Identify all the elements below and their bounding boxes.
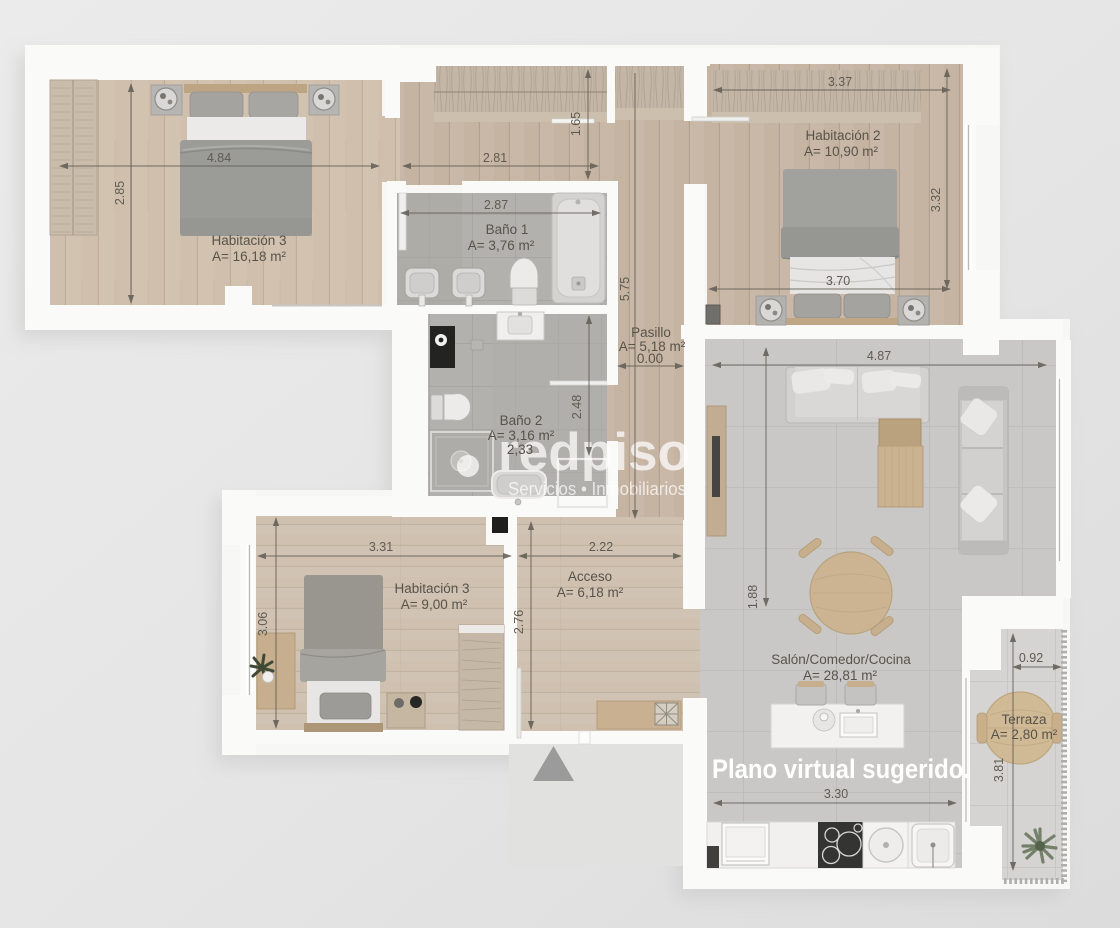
svg-text:A= 28,81 m²: A= 28,81 m² (803, 668, 877, 683)
svg-text:A= 3,76 m²: A= 3,76 m² (468, 238, 535, 253)
svg-text:1.88: 1.88 (746, 585, 760, 609)
svg-text:Habitación 3: Habitación 3 (211, 233, 286, 248)
svg-text:2.81: 2.81 (483, 151, 507, 165)
svg-text:3.31: 3.31 (369, 540, 393, 554)
svg-text:Pasillo: Pasillo (631, 325, 671, 340)
svg-text:A= 10,90 m²: A= 10,90 m² (804, 144, 878, 159)
svg-text:3.06: 3.06 (256, 612, 270, 636)
svg-text:3.70: 3.70 (826, 274, 850, 288)
svg-text:3.81: 3.81 (992, 758, 1006, 782)
svg-text:2.76: 2.76 (512, 610, 526, 634)
svg-text:2.22: 2.22 (589, 540, 613, 554)
svg-text:Baño 1: Baño 1 (486, 222, 529, 237)
svg-text:5.75: 5.75 (618, 277, 632, 301)
svg-text:0.92: 0.92 (1019, 651, 1043, 665)
svg-text:Plano virtual sugerido.: Plano virtual sugerido. (712, 754, 970, 784)
svg-text:4.84: 4.84 (207, 151, 231, 165)
svg-text:Baño 2: Baño 2 (500, 413, 543, 428)
svg-text:Habitación 3: Habitación 3 (394, 581, 469, 596)
svg-text:1.65: 1.65 (569, 112, 583, 136)
svg-text:0.00: 0.00 (637, 351, 663, 366)
svg-text:A= 16,18 m²: A= 16,18 m² (212, 249, 286, 264)
svg-text:3.30: 3.30 (824, 787, 848, 801)
svg-text:2.48: 2.48 (570, 395, 584, 419)
svg-text:3.37: 3.37 (828, 75, 852, 89)
svg-text:A= 9,00 m²: A= 9,00 m² (401, 597, 468, 612)
svg-text:2.85: 2.85 (113, 181, 127, 205)
svg-text:Servicios • Inmobiliarios: Servicios • Inmobiliarios (508, 479, 686, 499)
svg-text:A= 2,80 m²: A= 2,80 m² (991, 727, 1058, 742)
svg-text:2.87: 2.87 (484, 198, 508, 212)
svg-text:Salón/Comedor/Cocina: Salón/Comedor/Cocina (771, 652, 911, 667)
svg-text:Habitación 2: Habitación 2 (805, 128, 880, 143)
svg-text:Acceso: Acceso (568, 569, 612, 584)
svg-text:2,33: 2,33 (507, 442, 533, 457)
svg-text:3.32: 3.32 (929, 188, 943, 212)
svg-text:A= 6,18 m²: A= 6,18 m² (557, 585, 624, 600)
svg-text:A= 3,16 m²: A= 3,16 m² (488, 428, 555, 443)
svg-text:Terraza: Terraza (1001, 712, 1047, 727)
svg-text:4.87: 4.87 (867, 349, 891, 363)
